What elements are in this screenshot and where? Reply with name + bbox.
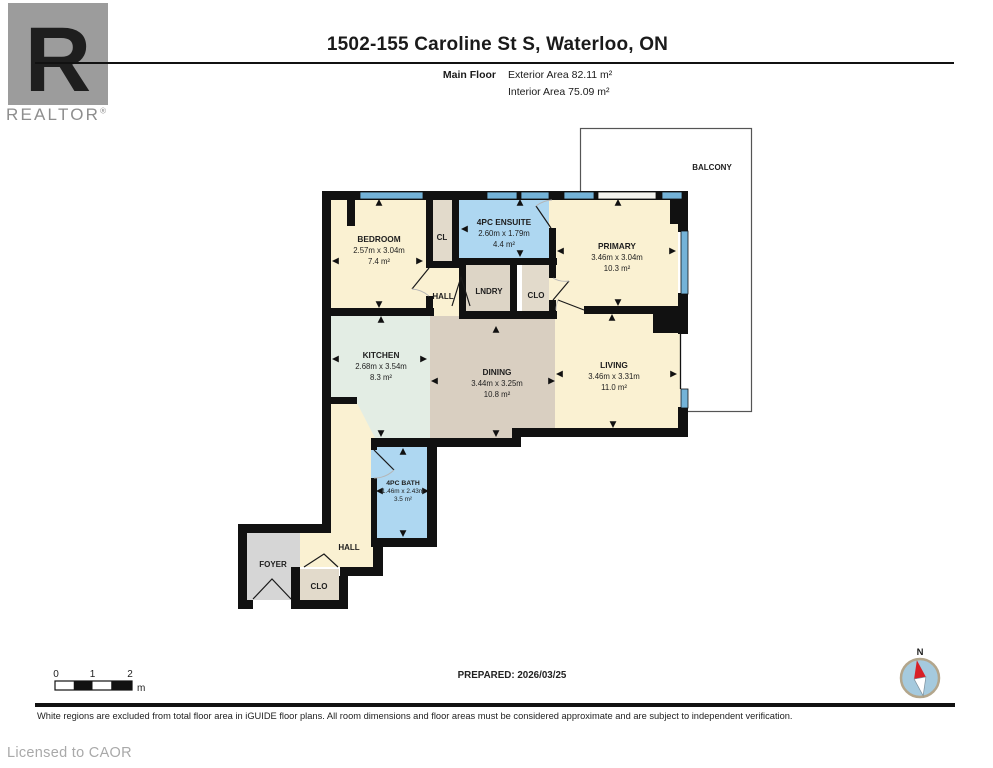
svg-text:2.57m x 3.04m: 2.57m x 3.04m xyxy=(353,246,405,255)
svg-text:3.46m x 3.04m: 3.46m x 3.04m xyxy=(591,253,643,262)
label-living: LIVING xyxy=(600,360,628,370)
label-cl: CL xyxy=(437,233,448,242)
label-balcony: BALCONY xyxy=(692,163,732,172)
page-title: 1502-155 Caroline St S, Waterloo, ON xyxy=(40,34,955,56)
label-bedroom: BEDROOM xyxy=(357,234,400,244)
scale-tick-0: 0 xyxy=(53,669,59,680)
footer-rule xyxy=(35,703,955,707)
label-foyer: FOYER xyxy=(259,560,287,569)
label-closet-lower: CLO xyxy=(311,582,328,591)
label-dining: DINING xyxy=(482,367,511,377)
scale-tick-1: 1 xyxy=(90,669,96,680)
floorplan-drawing: BALCONY BEDROOM 2.57m x 3.04m 7.4 m² CL … xyxy=(230,120,760,617)
prepared-date: PREPARED: 2026/03/25 xyxy=(362,670,662,681)
window-primary-corner xyxy=(662,192,682,199)
window-ensuite-2 xyxy=(521,192,549,199)
room-hall-lower xyxy=(300,438,373,567)
exterior-area-label: Exterior Area 82.11 m² xyxy=(508,69,612,81)
scale-tick-2: 2 xyxy=(127,669,133,680)
svg-text:11.0 m²: 11.0 m² xyxy=(601,383,627,392)
label-hall-upper: HALL xyxy=(432,292,453,301)
license-text: Licensed to CAOR xyxy=(7,745,132,761)
room-closet-upper xyxy=(522,265,549,311)
header-rule xyxy=(35,62,954,64)
window-bedroom xyxy=(360,192,423,199)
svg-text:3.44m x 3.25m: 3.44m x 3.25m xyxy=(471,379,523,388)
floor-label: Main Floor xyxy=(346,69,496,81)
window-primary-top xyxy=(564,192,594,199)
svg-text:10.3 m²: 10.3 m² xyxy=(604,264,631,273)
realtor-wordmark-text: REALTOR xyxy=(6,105,100,124)
room-dining xyxy=(430,316,555,438)
svg-text:2.68m x 3.54m: 2.68m x 3.54m xyxy=(355,362,407,371)
compass-icon: N xyxy=(893,641,949,703)
room-cl xyxy=(433,200,452,261)
label-hall-lower: HALL xyxy=(338,543,359,552)
label-kitchen: KITCHEN xyxy=(363,350,400,360)
compass-north-label: N xyxy=(917,647,924,658)
window-living-side xyxy=(681,389,688,408)
disclaimer-text: White regions are excluded from total fl… xyxy=(37,711,793,721)
label-bath: 4PC BATH xyxy=(386,480,420,487)
svg-text:7.4 m²: 7.4 m² xyxy=(368,257,390,266)
svg-text:3.5 m²: 3.5 m² xyxy=(394,496,412,503)
label-ensuite: 4PC ENSUITE xyxy=(477,217,532,227)
interior-area-label: Interior Area 75.09 m² xyxy=(508,86,610,98)
floorplan-page: R REALTOR® 1502-155 Caroline St S, Water… xyxy=(0,0,993,768)
label-primary: PRIMARY xyxy=(598,241,636,251)
registered-mark: ® xyxy=(100,106,108,115)
svg-text:8.3 m²: 8.3 m² xyxy=(370,373,392,382)
label-closet-upper: CLO xyxy=(528,291,545,300)
svg-text:1.46m x 2.43m: 1.46m x 2.43m xyxy=(382,488,424,495)
svg-text:3.46m x 3.31m: 3.46m x 3.31m xyxy=(588,372,640,381)
window-primary-side xyxy=(681,231,688,294)
svg-text:4.4 m²: 4.4 m² xyxy=(493,240,515,249)
logo-letter: R xyxy=(25,9,91,105)
label-laundry: LNDRY xyxy=(475,287,503,296)
svg-text:2.60m x 1.79m: 2.60m x 1.79m xyxy=(478,229,530,238)
svg-text:10.8 m²: 10.8 m² xyxy=(484,390,511,399)
patio-door-primary xyxy=(598,192,656,199)
window-ensuite-1 xyxy=(487,192,517,199)
scale-bar: 0 1 2 m xyxy=(40,660,155,696)
realtor-wordmark: REALTOR® xyxy=(6,105,108,125)
scale-unit: m xyxy=(137,683,145,694)
